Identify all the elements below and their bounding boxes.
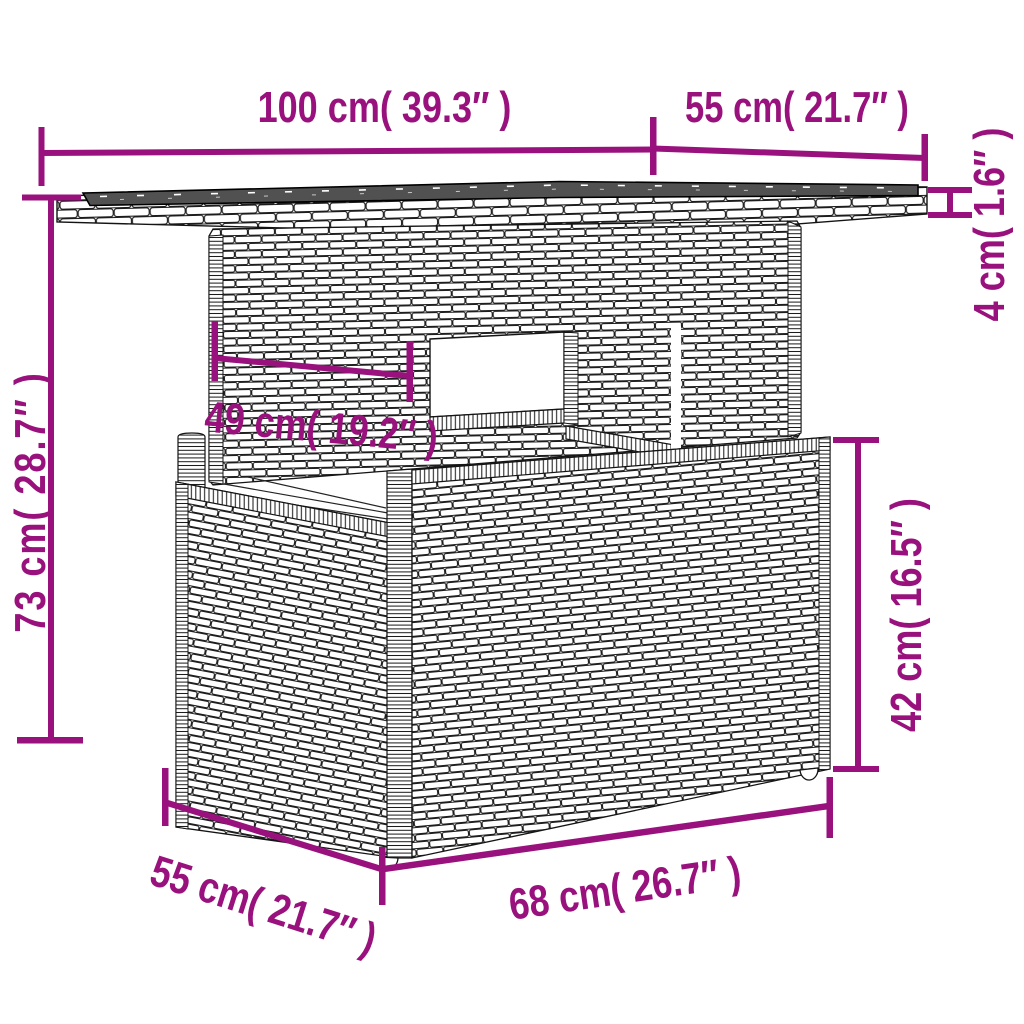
svg-text:4 cm( 1.6″ ): 4 cm( 1.6″ ) [965, 128, 1014, 322]
svg-text:55 cm( 21.7″ ): 55 cm( 21.7″ ) [685, 83, 909, 132]
svg-text:100 cm( 39.3″ ): 100 cm( 39.3″ ) [258, 83, 512, 132]
svg-text:42 cm( 16.5″ ): 42 cm( 16.5″ ) [882, 498, 931, 732]
svg-text:73 cm( 28.7″ ): 73 cm( 28.7″ ) [6, 371, 55, 632]
